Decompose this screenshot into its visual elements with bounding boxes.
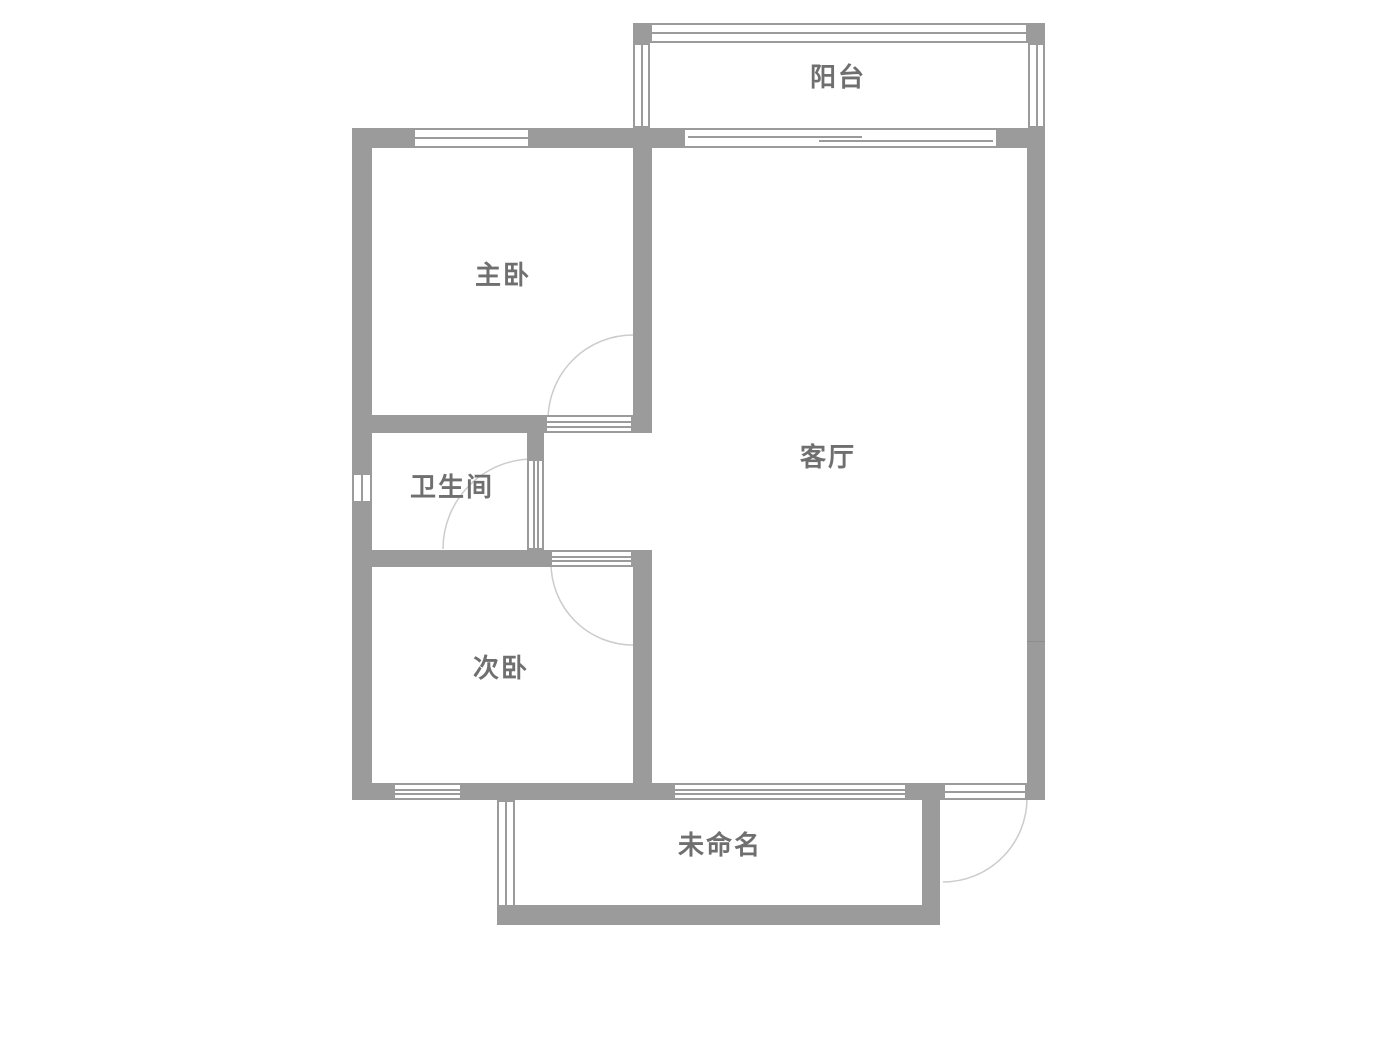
balcony-sliding-door — [683, 128, 998, 148]
room-label-balcony: 阳台 — [778, 63, 898, 91]
bathroom-bottom-wall — [352, 550, 550, 567]
bathroom-window — [352, 473, 372, 503]
bathroom-right-wall-block — [527, 433, 544, 459]
balcony-corner-top-right — [1028, 23, 1045, 43]
room-label-master-bedroom: 主卧 — [443, 261, 563, 289]
wall-seam — [1027, 641, 1045, 642]
second-bedroom-door — [550, 550, 633, 567]
second-bedroom-window — [393, 783, 462, 800]
unnamed-left-railing — [497, 800, 515, 907]
entry-door-arc — [943, 798, 1027, 882]
living-top-wall-left — [652, 128, 683, 148]
room-label-unnamed: 未命名 — [640, 831, 800, 859]
door-swing-arcs — [0, 0, 1400, 1050]
balcony-corner-top-left — [633, 23, 650, 43]
balcony-top-railing — [650, 23, 1028, 43]
master-bottom-wall — [352, 415, 545, 433]
bottom-wall-segment-middle — [462, 783, 673, 800]
bottom-wall-segment-right — [907, 783, 943, 800]
master-top-wall-right — [530, 128, 652, 148]
balcony-right-railing — [1028, 43, 1045, 128]
unnamed-bottom-wall — [497, 905, 940, 925]
master-bedroom-door — [545, 415, 633, 433]
living-room-window — [673, 783, 907, 800]
master-top-wall-left — [352, 128, 413, 148]
living-top-wall-right — [998, 128, 1045, 148]
room-label-bathroom: 卫生间 — [372, 473, 532, 501]
room-label-living-room: 客厅 — [768, 443, 888, 471]
room-label-second-bedroom: 次卧 — [441, 654, 561, 682]
balcony-left-railing — [633, 43, 650, 128]
floor-plan: 阳台 主卧 卫生间 次卧 客厅 未命名 — [0, 0, 1400, 1050]
entry-door — [943, 783, 1027, 800]
outer-left-wall — [352, 128, 372, 800]
master-living-partition-wall — [633, 148, 652, 433]
bottom-wall-segment-left — [352, 783, 393, 800]
master-bedroom-door-arc — [548, 335, 633, 420]
outer-right-wall — [1027, 148, 1045, 800]
unnamed-right-wall — [922, 800, 940, 905]
master-bedroom-window — [413, 128, 530, 148]
second-bedroom-living-partition-wall — [633, 550, 652, 800]
second-bedroom-door-arc — [551, 563, 633, 645]
